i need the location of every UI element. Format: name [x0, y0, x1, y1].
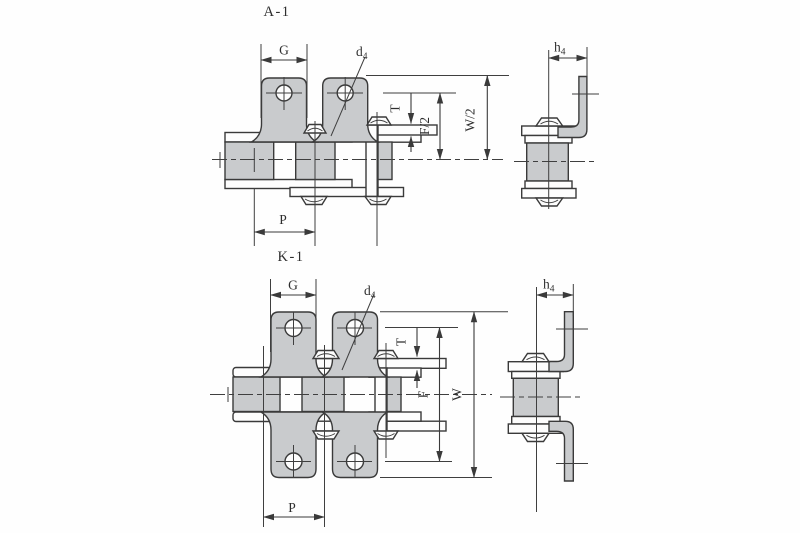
a1-side-pin-head-bottom: [536, 198, 563, 206]
a1-pin-head-bottom-right: [365, 197, 391, 205]
k1-dim-g-label: G: [288, 278, 298, 293]
a1-drawing: A-1: [212, 4, 599, 246]
k1-front-view: G d4 T F W P: [210, 278, 508, 528]
k1-side-bent-attachment-top: [549, 312, 573, 372]
a1-dim-g-label: G: [279, 43, 289, 58]
chain-attachment-drawing: A-1: [0, 0, 800, 533]
k1-dim-f-label: F: [416, 390, 431, 398]
k1-d4-label: d4: [364, 283, 376, 301]
a1-dim-w2-label: W/2: [463, 108, 478, 131]
a1-dim-h4-label: h4: [554, 40, 566, 58]
k1-dim-t-label: T: [394, 337, 409, 346]
k1-side-bent-attachment-bottom: [549, 421, 573, 481]
a1-side-bent-attachment: [558, 77, 587, 138]
k1-dim-h4-label: h4: [543, 277, 555, 295]
a1-front-view: G d4 T F/2 W/2 P: [212, 43, 509, 247]
k1-drawing: K-1: [210, 249, 588, 527]
a1-dim-f2-label: F/2: [417, 117, 432, 135]
k1-pin-head-top-mid: [313, 351, 339, 359]
k1-pin-head-bottom-mid: [313, 431, 339, 439]
a1-side-view: h4: [514, 40, 599, 210]
k1-side-view: h4: [500, 277, 588, 513]
a1-title: A-1: [263, 4, 290, 20]
k1-side-pin-head-top: [522, 354, 549, 362]
k1-dim-w-label: W: [450, 388, 465, 401]
a1-pin-head-bottom-mid: [301, 197, 327, 205]
k1-dim-p-label: P: [288, 500, 296, 515]
a1-bottom-outer-link-plate: [290, 188, 404, 197]
drawing-canvas: A-1: [0, 0, 800, 533]
a1-d4-label: d4: [356, 44, 368, 62]
a1-roller-1: [225, 142, 274, 180]
k1-side-plate-2: [512, 372, 560, 379]
a1-side-pin-head-top: [536, 118, 563, 126]
a1-dim-t-label: T: [388, 104, 403, 113]
a1-dim-p-label: P: [279, 212, 287, 227]
a1-pin-head-top-right: [367, 117, 391, 125]
k1-side-pin-head-bottom: [522, 433, 549, 441]
k1-title: K-1: [277, 249, 304, 265]
